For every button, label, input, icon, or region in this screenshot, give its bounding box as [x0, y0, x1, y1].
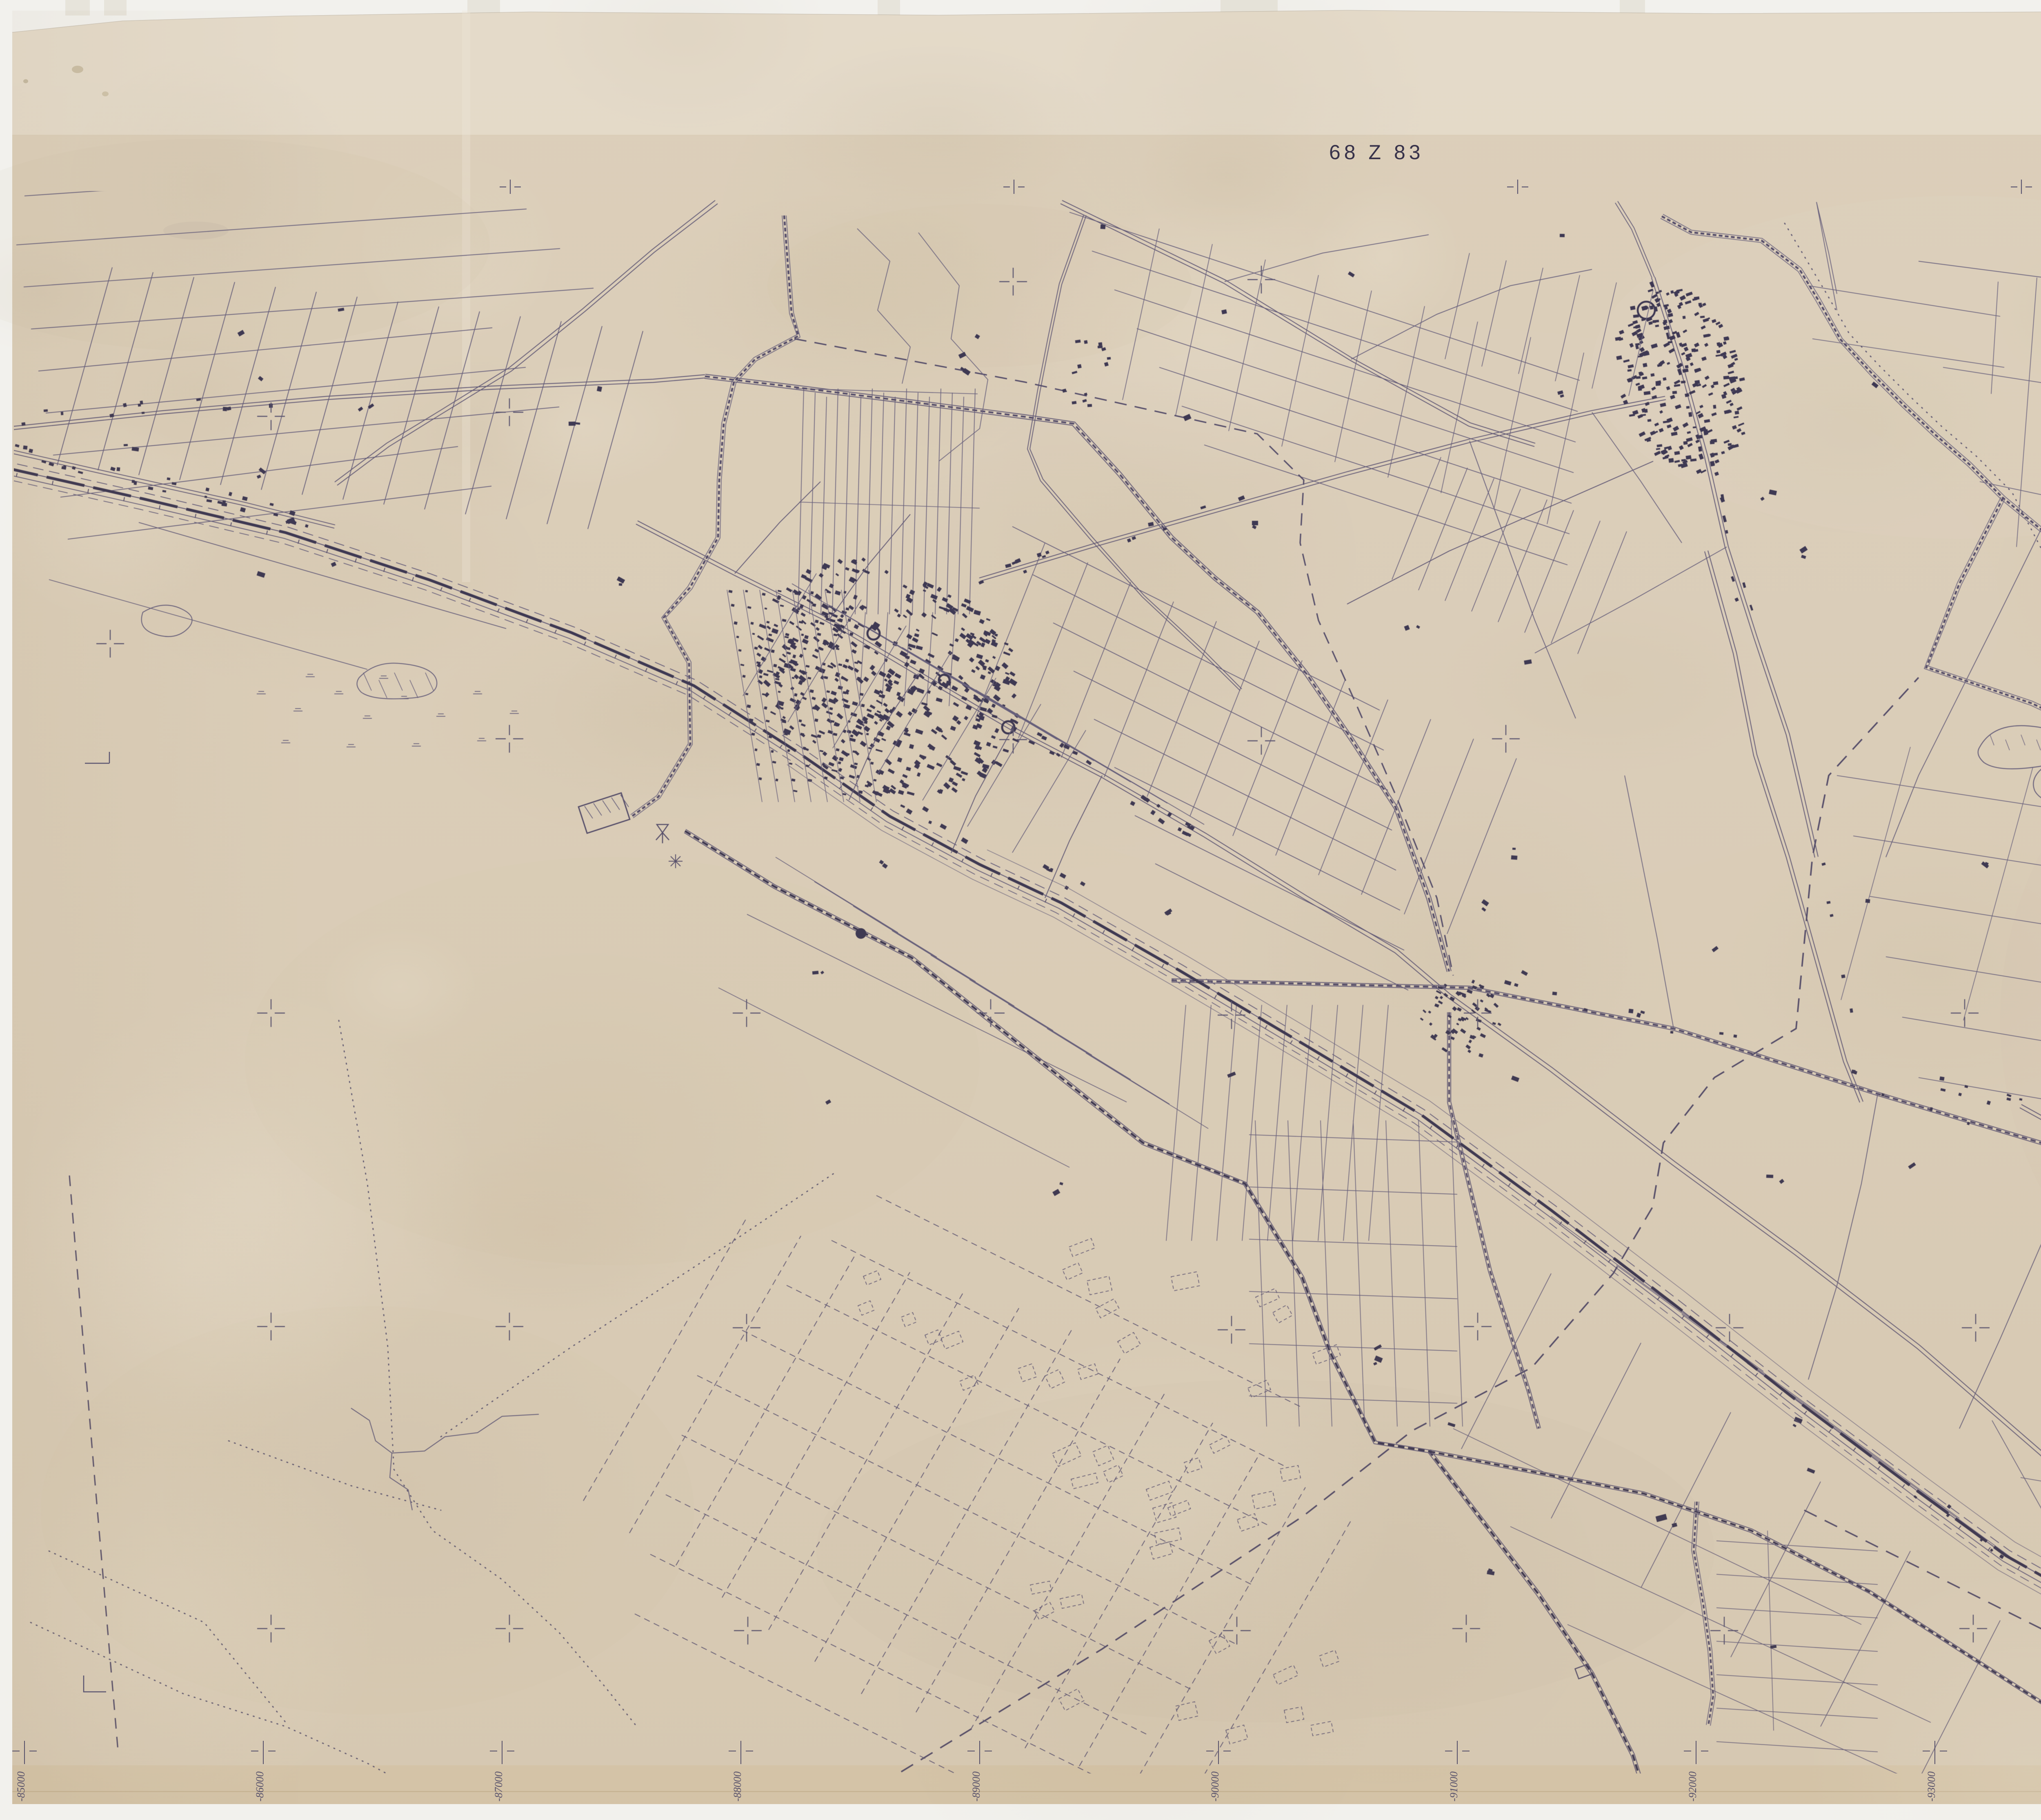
svg-text:-91000: -91000	[1448, 1771, 1460, 1802]
svg-text:-86000: -86000	[254, 1771, 266, 1802]
svg-text:-92000: -92000	[1687, 1771, 1699, 1802]
svg-text:-90000: -90000	[1209, 1771, 1221, 1802]
svg-text:-88000: -88000	[731, 1771, 743, 1802]
svg-text:-87000: -87000	[493, 1771, 505, 1802]
svg-text:-89000: -89000	[970, 1771, 982, 1802]
svg-text:-85000: -85000	[15, 1771, 27, 1802]
svg-text:-93000: -93000	[1925, 1771, 1937, 1802]
